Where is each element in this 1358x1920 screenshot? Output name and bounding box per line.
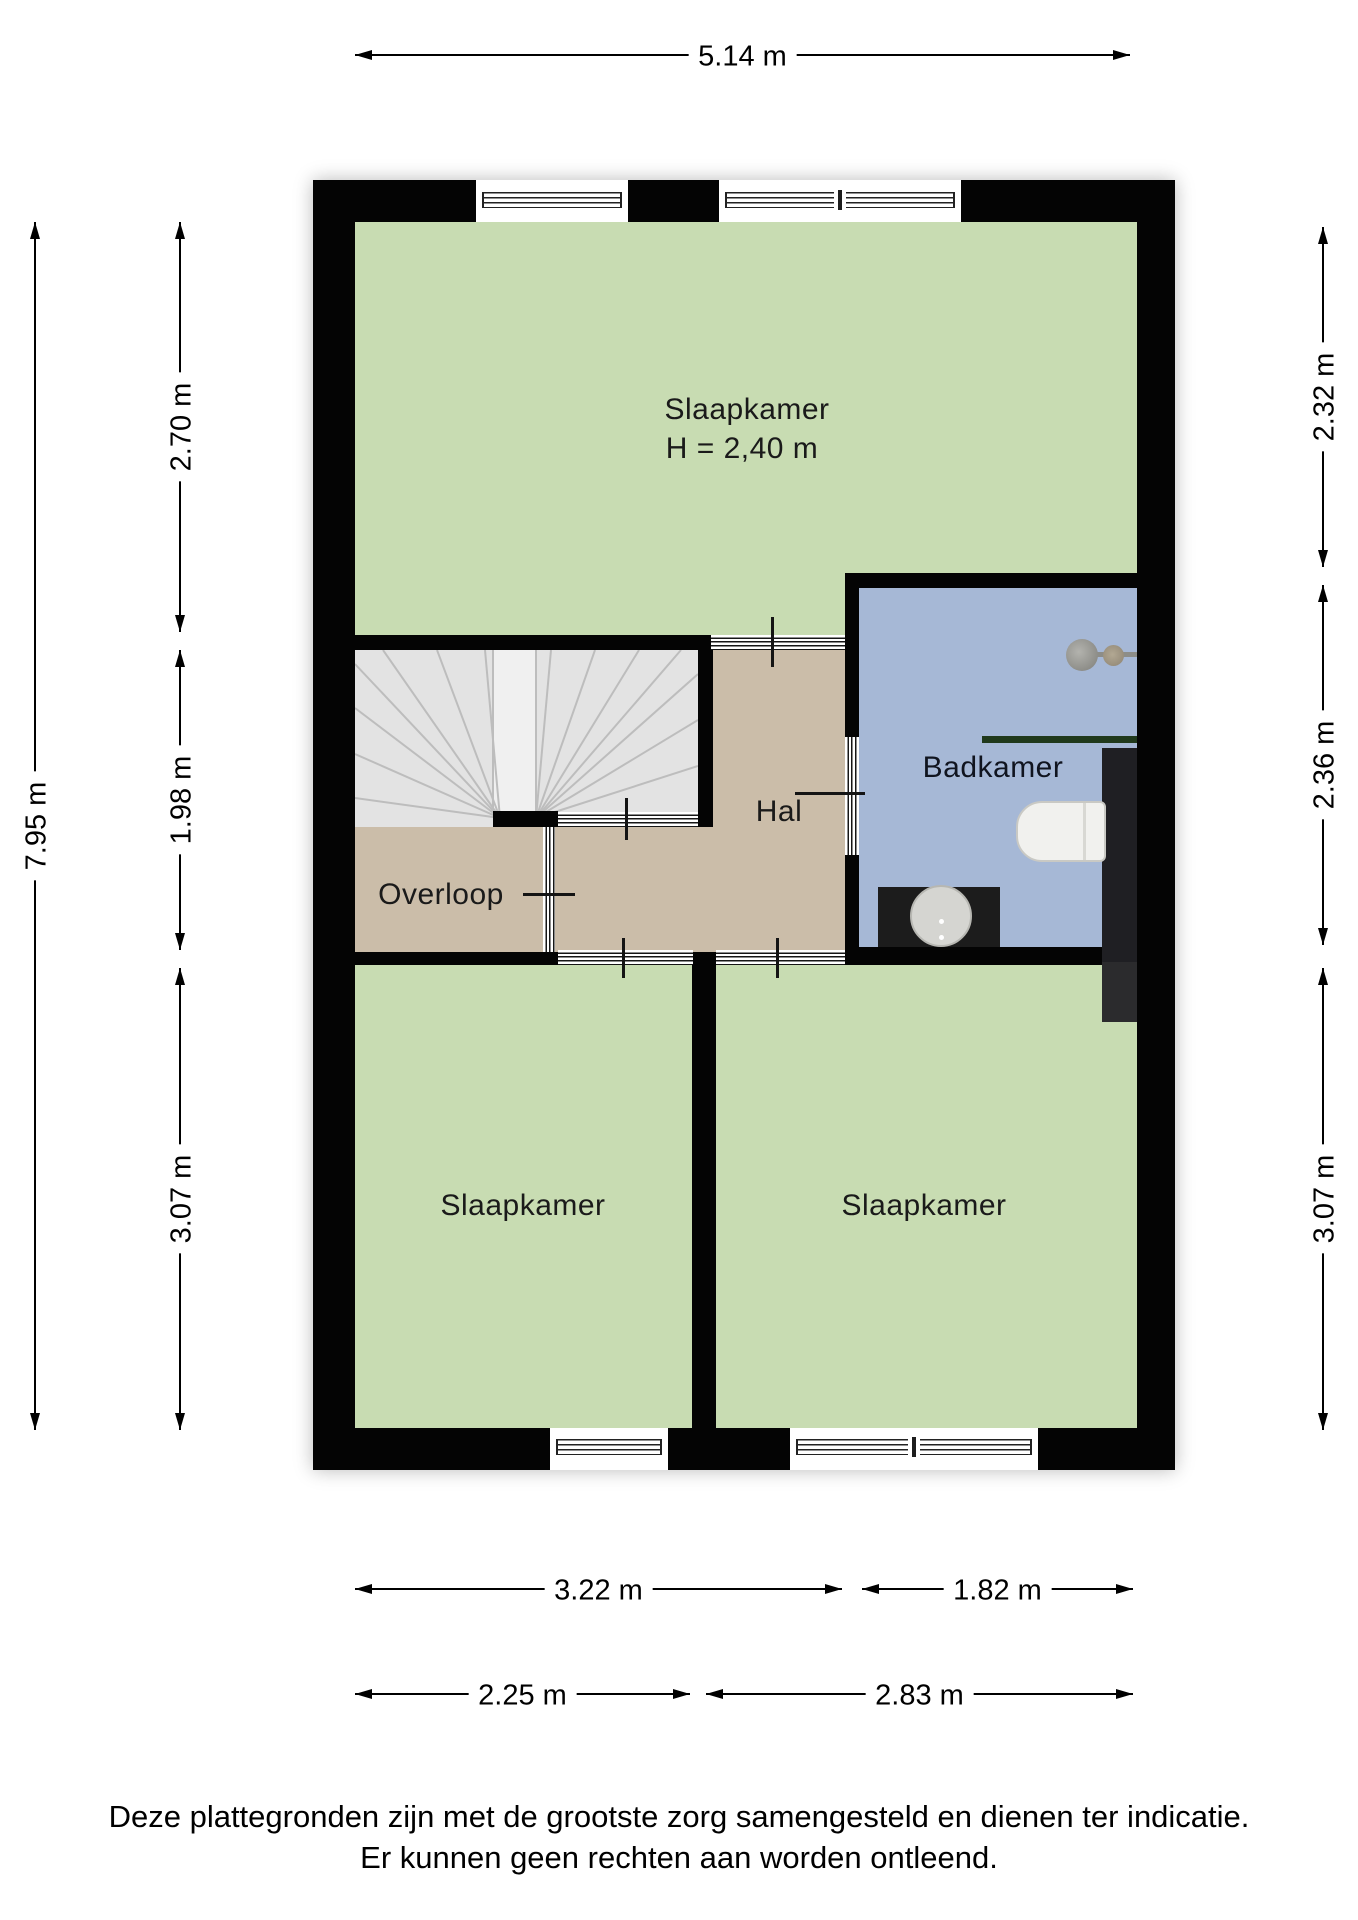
dim-right-segment-1: 2.32 m [1322,227,1324,567]
dim-bottom-row1-right-label: 1.82 m [943,1575,1052,1608]
dim-right-segment-2: 2.36 m [1322,585,1324,945]
window-mullion [908,1437,920,1457]
sink-faucet [939,935,944,940]
door-tick-bedroom-bottom-right [776,938,779,978]
sink-drain [939,919,944,924]
dim-left-total: 7.95 m [34,222,36,1430]
dim-left-segment-3-label: 3.07 m [166,1145,199,1254]
door-tick-bathroom [795,792,865,795]
dim-bottom-row2-right: 2.83 m [706,1693,1133,1695]
room-label-bedroom-top-height: H = 2,40 m [666,432,819,466]
room-label-landing: Overloop [378,878,504,912]
stairs-icon [355,650,698,827]
window-icon-bottom-right [790,1428,1038,1470]
dim-right-segment-3-label: 3.07 m [1309,1145,1342,1254]
door-opening-bedroom-bottom-left [558,950,693,965]
dim-left-segment-1-label: 2.70 m [166,373,199,482]
window-icon-bottom-left [550,1428,668,1470]
sink-icon [910,885,972,947]
cabinet-icon [1102,748,1137,1022]
door-tick-landing-hall [523,893,575,896]
dim-right-segment-1-label: 2.32 m [1309,343,1342,452]
window-glazing [556,1439,662,1455]
room-label-hall: Hal [756,795,803,829]
dim-bottom-row2-right-label: 2.83 m [865,1680,974,1713]
dim-left-total-label: 7.95 m [21,772,54,881]
footer-disclaimer-line2: Er kunnen geen rechten aan worden ontlee… [0,1840,1358,1876]
door-opening-landing-hall [543,827,555,952]
door-opening-bedroom-bottom-right [716,950,845,965]
dim-left-segment-2: 1.98 m [179,650,181,950]
door-opening-bedroom-top [711,635,845,650]
dim-bottom-row2-left-label: 2.25 m [468,1680,577,1713]
window-icon-top-right [719,180,961,222]
dim-left-segment-2-label: 1.98 m [166,746,199,855]
toilet-icon [1016,801,1106,862]
toilet-tank-seam [1083,803,1086,860]
dim-left-segment-1: 2.70 m [179,222,181,632]
stair-railing-opening [558,812,698,827]
window-glazing [482,192,622,208]
dim-bottom-row2-left: 2.25 m [355,1693,690,1695]
room-label-bedroom-top: Slaapkamer [664,393,829,427]
floorplan-canvas: 5.14 m 7.95 m 2.70 m 1.98 m 3.07 m 2.32 … [0,0,1358,1920]
dim-top-width: 5.14 m [355,54,1130,56]
footer-disclaimer-line1: Deze plattegronden zijn met de grootste … [0,1799,1358,1835]
shower-hose-icon [1103,645,1124,666]
dim-left-segment-3: 3.07 m [179,968,181,1430]
towel-bar-icon [982,736,1137,743]
dim-right-segment-2-label: 2.36 m [1309,711,1342,820]
stair-wall-stub [493,811,558,827]
room-label-bedroom-bottom-right: Slaapkamer [841,1189,1006,1223]
room-label-bedroom-bottom-left: Slaapkamer [440,1189,605,1223]
dim-top-width-label: 5.14 m [688,41,797,74]
door-opening-bathroom [845,737,859,855]
room-label-bathroom: Badkamer [923,751,1064,785]
stair-railing-tick [625,798,628,840]
dim-bottom-row1-left: 3.22 m [355,1588,842,1590]
window-mullion [834,190,846,210]
shower-icon [1066,639,1098,671]
dim-bottom-row1-left-label: 3.22 m [544,1575,653,1608]
dim-bottom-row1-right: 1.82 m [862,1588,1133,1590]
door-tick-bedroom-bottom-left [622,938,625,978]
dim-right-segment-3: 3.07 m [1322,968,1324,1430]
door-tick-bedroom-top [771,617,774,667]
window-icon-top-left [476,180,628,222]
